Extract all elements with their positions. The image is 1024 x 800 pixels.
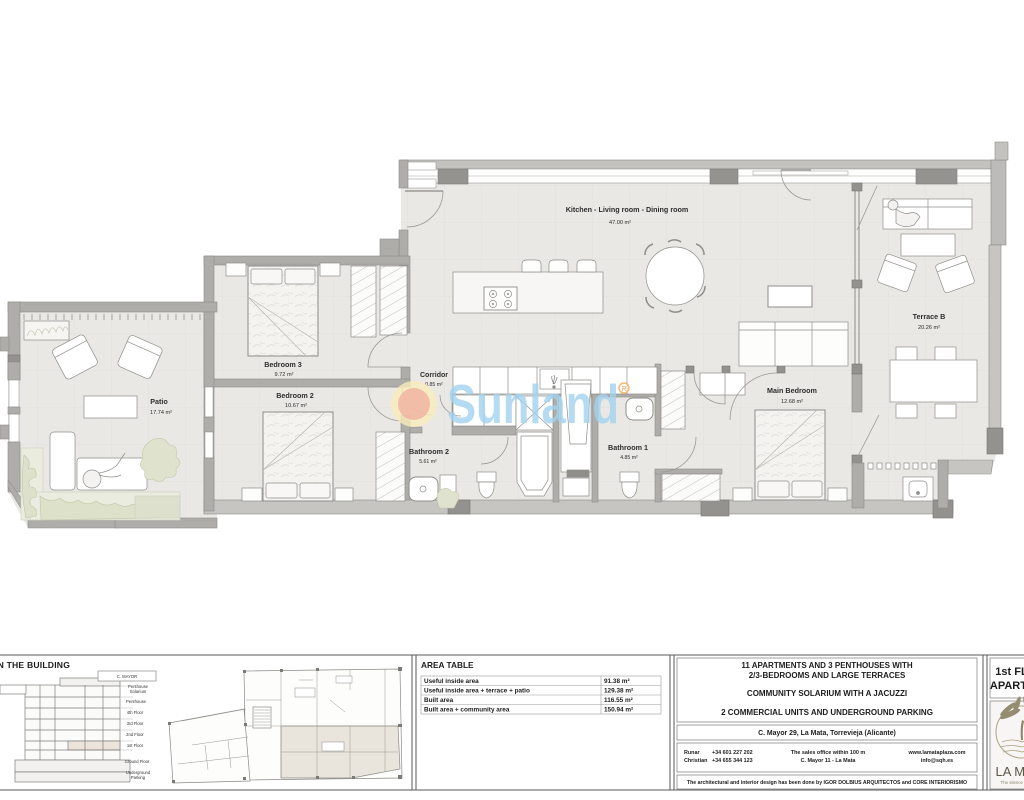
svg-text:1st Floor: 1st Floor (127, 743, 144, 748)
svg-text:Bedroom 3: Bedroom 3 (264, 360, 302, 369)
svg-text:Main Bedroom: Main Bedroom (767, 386, 817, 395)
svg-text:C. Mayor 11 - La Mata: C. Mayor 11 - La Mata (801, 758, 857, 764)
svg-text:The silence of the sea: The silence of the sea (1001, 780, 1024, 785)
svg-text:LA MATA: LA MATA (996, 764, 1024, 779)
svg-text:17.74 m²: 17.74 m² (150, 410, 172, 416)
svg-text:5.61 m²: 5.61 m² (419, 459, 437, 465)
svg-text:Built area: Built area (424, 697, 454, 704)
svg-text:Patio: Patio (150, 397, 168, 406)
svg-text:11 APARTMENTS AND 3 PENTHOUSES: 11 APARTMENTS AND 3 PENTHOUSES WITH (741, 661, 913, 670)
svg-text:The architectural and interior: The architectural and interior design ha… (687, 780, 967, 786)
svg-text:Bedroom 2: Bedroom 2 (276, 391, 314, 400)
svg-text:Parking: Parking (131, 775, 146, 780)
svg-text:APARTMENT: APARTMENT (990, 680, 1024, 692)
svg-text:91.38 m²: 91.38 m² (604, 678, 630, 685)
svg-text:info@sqh.es: info@sqh.es (921, 758, 953, 764)
svg-text:2/3-BEDROOMS AND LARGE TERRACE: 2/3-BEDROOMS AND LARGE TERRACES (749, 671, 906, 680)
svg-text:Ground Floor: Ground Floor (125, 759, 150, 764)
svg-text:The sales office within 100 m: The sales office within 100 m (791, 750, 866, 756)
svg-text:Christian: Christian (684, 758, 707, 764)
svg-text:3rd Floor: 3rd Floor (127, 721, 144, 726)
svg-text:150.94 m²: 150.94 m² (604, 707, 633, 714)
svg-text:1st FLOOR: 1st FLOOR (995, 666, 1024, 678)
svg-text:AREA TABLE: AREA TABLE (421, 660, 474, 670)
svg-text:2nd Floor: 2nd Floor (126, 732, 144, 737)
svg-text:Solarium: Solarium (130, 689, 147, 694)
svg-text:Terrace B: Terrace B (913, 312, 946, 321)
svg-text:Bathroom 2: Bathroom 2 (409, 447, 449, 456)
svg-text:Corridor: Corridor (420, 372, 448, 379)
svg-text:Sunland: Sunland (447, 373, 619, 435)
svg-text:C. Mayor 29, La Mata, Torrevie: C. Mayor 29, La Mata, Torrevieja (Alican… (758, 730, 896, 737)
svg-text:4th Floor: 4th Floor (127, 710, 144, 715)
svg-text:Bathroom 1: Bathroom 1 (608, 443, 648, 452)
svg-text:20.26 m²: 20.26 m² (918, 325, 940, 331)
svg-text:129.38 m²: 129.38 m² (604, 688, 633, 695)
svg-text:116.55 m²: 116.55 m² (604, 697, 633, 704)
svg-text:Useful inside area: Useful inside area (424, 678, 479, 685)
svg-text:+34 601 227 202: +34 601 227 202 (712, 750, 753, 756)
svg-text:+34 655 344 123: +34 655 344 123 (712, 758, 753, 764)
svg-text:4.85 m²: 4.85 m² (620, 455, 638, 461)
svg-text:Useful inside area + terrace +: Useful inside area + terrace + patio (424, 688, 530, 695)
svg-text:10.67 m²: 10.67 m² (285, 403, 307, 409)
svg-text:N IN THE BUILDING: N IN THE BUILDING (0, 660, 70, 670)
svg-text:12.68 m²: 12.68 m² (781, 399, 803, 405)
svg-text:47.00 m²: 47.00 m² (609, 220, 631, 226)
svg-text:R: R (622, 386, 627, 393)
svg-text:www.lamataplaza.com: www.lamataplaza.com (907, 750, 965, 756)
svg-text:Built area + community area: Built area + community area (424, 707, 510, 714)
svg-text:2 COMMERCIAL UNITS AND UNDERGR: 2 COMMERCIAL UNITS AND UNDERGROUND PARKI… (721, 708, 933, 717)
svg-text:C. MAYOR: C. MAYOR (117, 674, 137, 679)
svg-text:Penthouse: Penthouse (126, 699, 147, 704)
svg-text:Kitchen - Living room - Dining: Kitchen - Living room - Dining room (566, 205, 689, 214)
svg-text:COMMUNITY SOLARIUM WITH A JACU: COMMUNITY SOLARIUM WITH A JACUZZI (747, 689, 907, 698)
svg-text:Runar: Runar (684, 750, 700, 756)
svg-text:9.72 m²: 9.72 m² (275, 372, 294, 378)
